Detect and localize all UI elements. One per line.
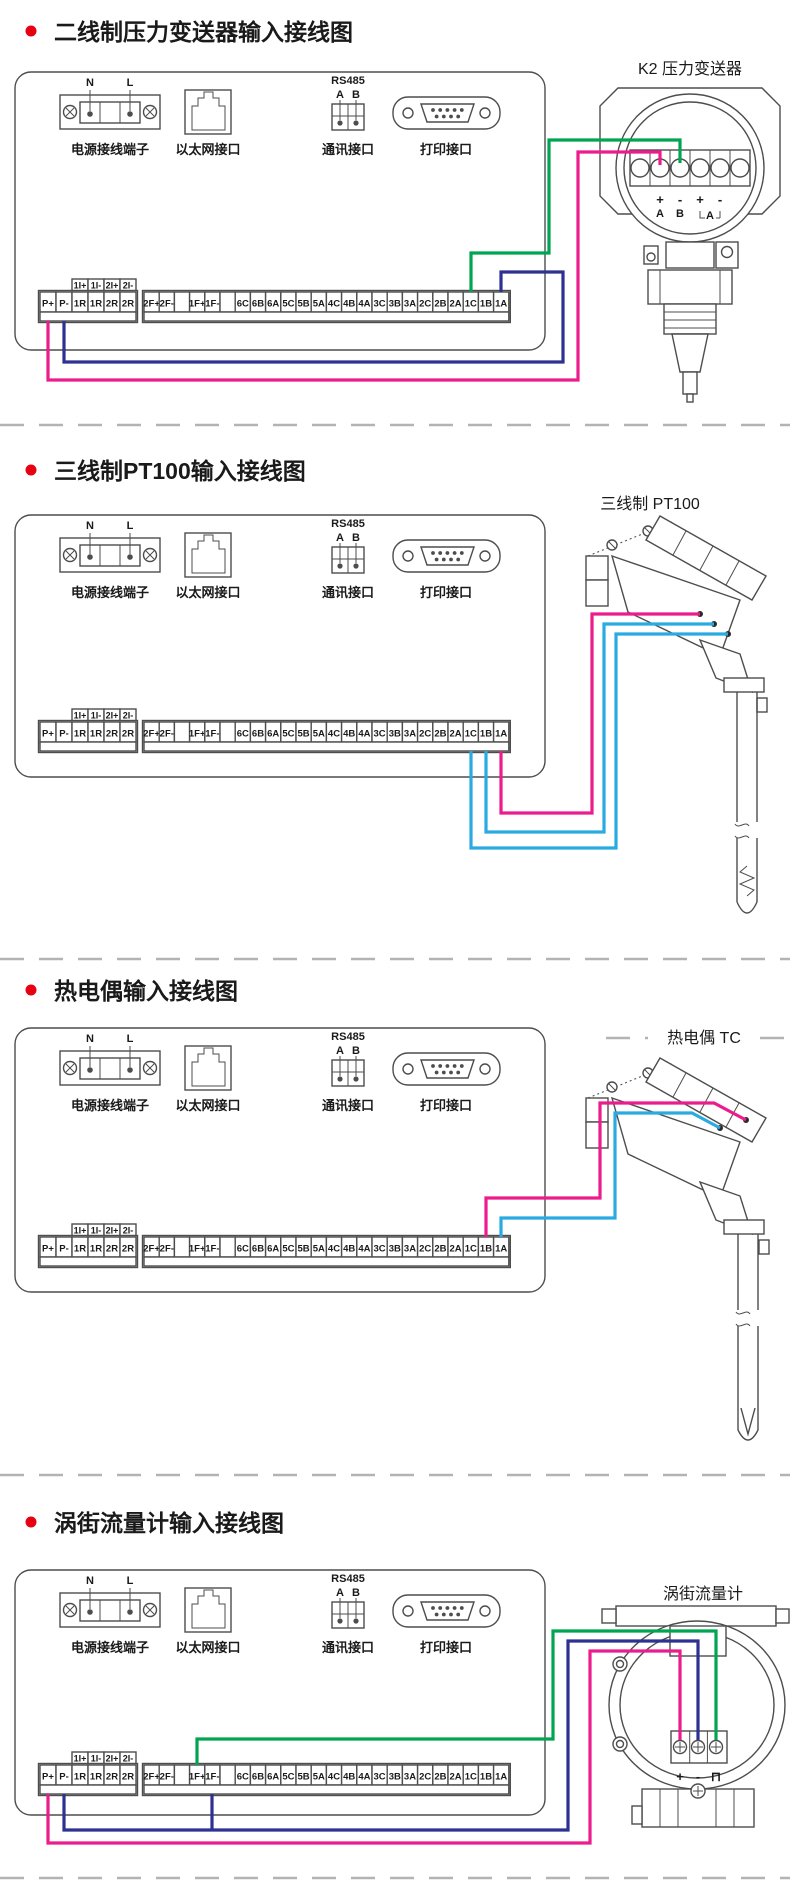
terminal-label: 1A (495, 299, 507, 310)
terminal-label: 2I+ (106, 1226, 119, 1236)
channel-mark: B (676, 208, 684, 220)
terminal-label: 1C (465, 1244, 477, 1255)
terminal-label: 2F+ (143, 1772, 160, 1783)
terminal-label: 1I+ (74, 1754, 87, 1764)
channel-mark: A (656, 208, 664, 220)
power-terminal-label: 电源接线端子 (71, 1640, 149, 1655)
ethernet-label: 以太网接口 (175, 1098, 240, 1113)
power-n-label: N (86, 1033, 94, 1045)
terminal-label: 1R (90, 729, 102, 740)
terminal-label: 2I- (123, 1226, 134, 1236)
polarity-mark: + (696, 192, 704, 207)
terminal-label: 4B (343, 1772, 355, 1783)
terminal-label: P- (59, 1244, 69, 1255)
terminal-label: 4B (343, 729, 355, 740)
terminal-label: 4C (328, 1772, 340, 1783)
comm-label: 通讯接口 (322, 585, 374, 600)
terminal-label: 2B (434, 1772, 446, 1783)
device-vortex-flowmeter: 涡街流量计 (602, 1585, 789, 1827)
power-n-label: N (86, 1575, 94, 1587)
terminal-label: 2C (419, 729, 431, 740)
terminal-label: 2R (106, 1772, 118, 1783)
terminal-label: 2A (450, 1772, 462, 1783)
terminal-label: 2A (450, 299, 462, 310)
terminal-label: 4C (328, 1244, 340, 1255)
terminal-label: 4A (358, 1772, 370, 1783)
terminal-label: 1F+ (189, 1244, 206, 1255)
rs485-a-label: A (336, 89, 344, 101)
terminal-label: 5B (298, 1244, 310, 1255)
comm-label: 通讯接口 (322, 1098, 374, 1113)
terminal-cell (174, 1765, 189, 1785)
terminal-label: 1F- (205, 1772, 219, 1783)
comm-label: 通讯接口 (322, 142, 374, 157)
terminal-label: 1R (90, 1244, 102, 1255)
terminal-label: 6B (252, 1244, 264, 1255)
terminal-cell (220, 1765, 235, 1785)
terminal-label: 1B (480, 1244, 492, 1255)
power-l-label: L (127, 1575, 134, 1587)
section-title: 涡街流量计输入接线图 (54, 1510, 284, 1536)
terminal-label: 1R (74, 299, 86, 310)
print-label: 打印接口 (420, 585, 472, 600)
terminal-label: 5B (298, 1772, 310, 1783)
terminal-label: P- (59, 729, 69, 740)
terminal-label: 1I+ (74, 711, 87, 721)
terminal-label: 4A (358, 299, 370, 310)
terminal-label: 6A (267, 729, 279, 740)
terminal-label: 1A (495, 1244, 507, 1255)
terminal-label: 1B (480, 299, 492, 310)
wiring-diagram-page: 二线制压力变送器输入接线图 NL电源接线端子以太网接口RS485AB通讯接口打印… (0, 0, 790, 1886)
terminal-label: 4B (343, 299, 355, 310)
rs485-a-label: A (336, 1045, 344, 1057)
terminal-label: 3A (404, 1244, 416, 1255)
terminal-label: 3B (389, 729, 401, 740)
terminal-label: 6A (267, 1772, 279, 1783)
rs485-title: RS485 (331, 1031, 365, 1043)
device-pressure-transmitter: K2 压力变送器 + - + - A B A (600, 60, 780, 402)
device-thermocouple: 热电偶 TC (586, 1029, 769, 1440)
device-label: 热电偶 TC (667, 1029, 741, 1047)
terminal-label: 1I- (91, 711, 102, 721)
terminal-label: 4A (358, 729, 370, 740)
section-vortex-flowmeter: 涡街流量计输入接线图 NL电源接线端子以太网接口RS485AB通讯接口打印接口1… (15, 1510, 789, 1843)
polarity-mark: - (696, 1769, 700, 1784)
terminal-label: 2C (419, 1772, 431, 1783)
power-l-label: L (127, 1033, 134, 1045)
terminal-label: 2F- (160, 1244, 174, 1255)
terminal-label: 1C (465, 1772, 477, 1783)
pulse-mark: ⊓ (711, 1769, 721, 1784)
polarity-mark: + (676, 1769, 684, 1784)
recorder-rear-panel: NL电源接线端子以太网接口RS485AB通讯接口打印接口1I+1I-2I+2I-… (15, 1028, 545, 1292)
terminal-label: 2A (450, 729, 462, 740)
print-label: 打印接口 (420, 1640, 472, 1655)
terminal-label: 1R (90, 299, 102, 310)
terminal-cell (174, 722, 189, 742)
terminal-label: 1F- (205, 729, 219, 740)
terminal-label: 1R (90, 1772, 102, 1783)
polarity-mark: + (656, 192, 664, 207)
print-label: 打印接口 (420, 1098, 472, 1113)
terminal-label: 4C (328, 299, 340, 310)
terminal-label: 3C (374, 729, 386, 740)
rs485-b-label: B (352, 89, 360, 101)
terminal-label: 1B (480, 1772, 492, 1783)
terminal-label: 3B (389, 1772, 401, 1783)
section-title: 二线制压力变送器输入接线图 (54, 19, 353, 45)
rs485-b-label: B (352, 532, 360, 544)
terminal-label: 6B (252, 1772, 264, 1783)
terminal-cell (220, 722, 235, 742)
terminal-label: P+ (42, 729, 54, 740)
terminal-label: 5A (313, 729, 325, 740)
power-l-label: L (127, 77, 134, 89)
terminal-label: 3B (389, 1244, 401, 1255)
comm-label: 通讯接口 (322, 1640, 374, 1655)
terminal-label: P- (59, 299, 69, 310)
terminal-label: 2R (122, 729, 134, 740)
terminal-label: 2I- (123, 711, 134, 721)
terminal-label: 3A (404, 1772, 416, 1783)
terminal-label: 2I+ (106, 1754, 119, 1764)
bullet-icon (26, 985, 37, 996)
terminal-label: 5A (313, 299, 325, 310)
terminal-label: 2I- (123, 281, 134, 291)
terminal-label: 1F- (205, 1244, 219, 1255)
terminal-label: 3C (374, 1772, 386, 1783)
terminal-label: 1I+ (74, 1226, 87, 1236)
bullet-icon (26, 1517, 37, 1528)
terminal-label: 3C (374, 299, 386, 310)
terminal-label: 6B (252, 299, 264, 310)
rs485-b-label: B (352, 1045, 360, 1057)
terminal-label: P+ (42, 1244, 54, 1255)
terminal-label: 4B (343, 1244, 355, 1255)
terminal-label: 2B (434, 1244, 446, 1255)
terminal-label: 1A (495, 1772, 507, 1783)
diagram-canvas: 二线制压力变送器输入接线图 NL电源接线端子以太网接口RS485AB通讯接口打印… (0, 0, 790, 1886)
power-terminal-label: 电源接线端子 (71, 142, 149, 157)
ethernet-label: 以太网接口 (175, 1640, 240, 1655)
rs485-title: RS485 (331, 1573, 365, 1585)
terminal-label: 1I- (91, 281, 102, 291)
terminal-label: 2R (106, 729, 118, 740)
terminal-label: 5C (282, 1772, 294, 1783)
terminal-label: 2F- (160, 299, 174, 310)
terminal-label: 2C (419, 1244, 431, 1255)
print-label: 打印接口 (420, 142, 472, 157)
terminal-label: 2R (122, 299, 134, 310)
terminal-label: 6C (237, 1772, 249, 1783)
terminal-label: 2B (434, 299, 446, 310)
terminal-label: 6C (237, 299, 249, 310)
terminal-label: 2I+ (106, 281, 119, 291)
power-n-label: N (86, 520, 94, 532)
rs485-a-label: A (336, 1587, 344, 1599)
terminal-label: 1F- (205, 299, 219, 310)
terminal-label: 5C (282, 729, 294, 740)
terminal-label: 1F+ (189, 1772, 206, 1783)
terminal-label: 3A (404, 299, 416, 310)
polarity-mark: - (678, 192, 682, 207)
terminal-label: 5A (313, 1244, 325, 1255)
terminal-cell (220, 1237, 235, 1257)
terminal-label: 2I- (123, 1754, 134, 1764)
terminal-label: 2F+ (143, 729, 160, 740)
terminal-label: 3C (374, 1244, 386, 1255)
terminal-label: 1R (74, 1772, 86, 1783)
terminal-label: 1I+ (74, 281, 87, 291)
terminal-label: 6A (267, 299, 279, 310)
device-label: K2 压力变送器 (638, 60, 742, 78)
bullet-icon (26, 465, 37, 476)
rs485-title: RS485 (331, 75, 365, 87)
terminal-label: 5B (298, 299, 310, 310)
recorder-rear-panel: NL电源接线端子以太网接口RS485AB通讯接口打印接口1I+1I-2I+2I-… (15, 72, 545, 350)
terminal-label: 5B (298, 729, 310, 740)
rs485-b-label: B (352, 1587, 360, 1599)
terminal-label: P+ (42, 299, 54, 310)
recorder-rear-panel: NL电源接线端子以太网接口RS485AB通讯接口打印接口1I+1I-2I+2I-… (15, 1570, 545, 1815)
section-thermocouple: 热电偶输入接线图 NL电源接线端子以太网接口RS485AB通讯接口打印接口1I+… (15, 978, 790, 1440)
rs485-title: RS485 (331, 518, 365, 530)
section-title: 热电偶输入接线图 (54, 978, 238, 1004)
power-n-label: N (86, 77, 94, 89)
terminal-cell (220, 292, 235, 312)
terminal-label: 6A (267, 1244, 279, 1255)
terminal-label: 2R (106, 299, 118, 310)
terminal-label: 2A (450, 1244, 462, 1255)
terminal-label: 6C (237, 729, 249, 740)
terminal-cell (174, 292, 189, 312)
terminal-label: 1I- (91, 1226, 102, 1236)
rs485-a-label: A (336, 532, 344, 544)
terminal-label: 1C (465, 299, 477, 310)
terminal-label: 2F- (160, 729, 174, 740)
terminal-label: 2R (122, 1244, 134, 1255)
terminal-label: 1F+ (189, 729, 206, 740)
recorder-rear-panel: NL电源接线端子以太网接口RS485AB通讯接口打印接口1I+1I-2I+2I-… (15, 515, 545, 777)
section-title: 三线制PT100输入接线图 (54, 458, 306, 484)
channel-mark: A (706, 210, 714, 222)
terminal-label: 2I+ (106, 711, 119, 721)
terminal-label: P- (59, 1772, 69, 1783)
power-terminal-label: 电源接线端子 (71, 585, 149, 600)
terminal-label: 1R (74, 729, 86, 740)
terminal-label: 4A (358, 1244, 370, 1255)
terminal-label: 2R (106, 1244, 118, 1255)
terminal-label: 6C (237, 1244, 249, 1255)
terminal-label: 5C (282, 1244, 294, 1255)
ethernet-label: 以太网接口 (175, 142, 240, 157)
terminal-label: 2F+ (143, 299, 160, 310)
terminal-label: 2R (122, 1772, 134, 1783)
terminal-label: 1A (495, 729, 507, 740)
terminal-label: 1C (465, 729, 477, 740)
terminal-label: 5A (313, 1772, 325, 1783)
terminal-cell (174, 1237, 189, 1257)
terminal-label: 2C (419, 299, 431, 310)
terminal-label: 3B (389, 299, 401, 310)
terminal-label: 2B (434, 729, 446, 740)
terminal-label: 3A (404, 729, 416, 740)
terminal-label: 1B (480, 729, 492, 740)
polarity-mark: - (718, 192, 722, 207)
terminal-label: P+ (42, 1772, 54, 1783)
terminal-label: 2F- (160, 1772, 174, 1783)
power-terminal-label: 电源接线端子 (71, 1098, 149, 1113)
ethernet-label: 以太网接口 (175, 585, 240, 600)
terminal-label: 1R (74, 1244, 86, 1255)
terminal-label: 6B (252, 729, 264, 740)
device-label: 涡街流量计 (663, 1585, 743, 1603)
device-label: 三线制 PT100 (600, 495, 700, 513)
terminal-label: 4C (328, 729, 340, 740)
terminal-label: 1I- (91, 1754, 102, 1764)
device-pt100-sensor: 三线制 PT100 (586, 495, 767, 913)
section-pressure-transmitter: 二线制压力变送器输入接线图 NL电源接线端子以太网接口RS485AB通讯接口打印… (15, 19, 780, 402)
bullet-icon (26, 26, 37, 37)
section-pt100: 三线制PT100输入接线图 NL电源接线端子以太网接口RS485AB通讯接口打印… (15, 458, 767, 913)
terminal-label: 5C (282, 299, 294, 310)
power-l-label: L (127, 520, 134, 532)
terminal-label: 1F+ (189, 299, 206, 310)
terminal-label: 2F+ (143, 1244, 160, 1255)
